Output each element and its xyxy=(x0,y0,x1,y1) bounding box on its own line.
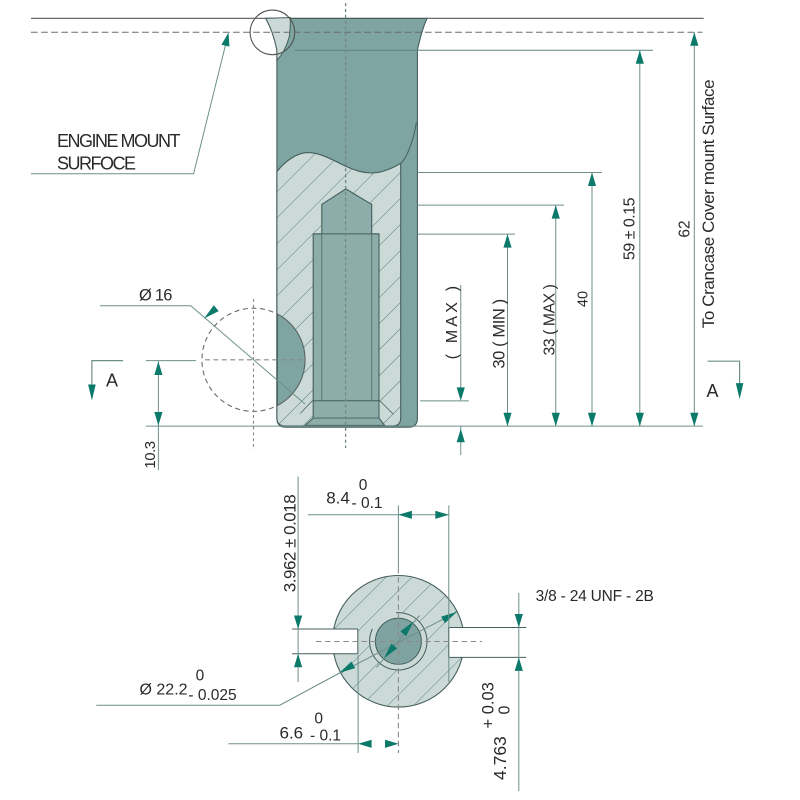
svg-text:10.3: 10.3 xyxy=(142,441,159,468)
svg-text:- 0.1: - 0.1 xyxy=(352,495,383,512)
svg-text:33 ( MAX ): 33 ( MAX ) xyxy=(542,284,559,355)
svg-text:+ 0.03: + 0.03 xyxy=(480,682,498,728)
svg-text:6.6: 6.6 xyxy=(280,723,304,742)
svg-text:0: 0 xyxy=(314,710,323,727)
svg-text:A: A xyxy=(707,381,719,401)
svg-text:- 0.1: - 0.1 xyxy=(310,727,341,744)
svg-text:A: A xyxy=(106,371,118,391)
svg-text:ENGINE MOUNT: ENGINE MOUNT xyxy=(57,131,181,151)
svg-text:59 ± 0.15: 59 ± 0.15 xyxy=(622,197,639,260)
svg-text:0: 0 xyxy=(497,706,514,715)
svg-text:- 0.025: - 0.025 xyxy=(188,687,236,704)
svg-text:3/8 - 24 UNF - 2B: 3/8 - 24 UNF - 2B xyxy=(536,588,654,605)
svg-text:0: 0 xyxy=(196,668,205,685)
svg-text:SURFOCE: SURFOCE xyxy=(57,154,136,174)
svg-text:3.962 ± 0.018: 3.962 ± 0.018 xyxy=(281,495,300,592)
svg-text:30 ( MIN ): 30 ( MIN ) xyxy=(491,299,509,368)
svg-text:4.763: 4.763 xyxy=(490,736,510,780)
svg-text:( MAX ): ( MAX ) xyxy=(444,283,461,360)
svg-text:8.4: 8.4 xyxy=(326,489,350,508)
svg-text:0: 0 xyxy=(359,477,368,494)
svg-text:To Crancase Cover mount Surfac: To Crancase Cover mount Surface xyxy=(699,80,718,328)
svg-text:62: 62 xyxy=(676,220,693,237)
svg-text:40: 40 xyxy=(576,291,592,307)
svg-text:Ø 22.2: Ø 22.2 xyxy=(140,682,188,699)
svg-text:Ø 16: Ø 16 xyxy=(139,287,172,305)
